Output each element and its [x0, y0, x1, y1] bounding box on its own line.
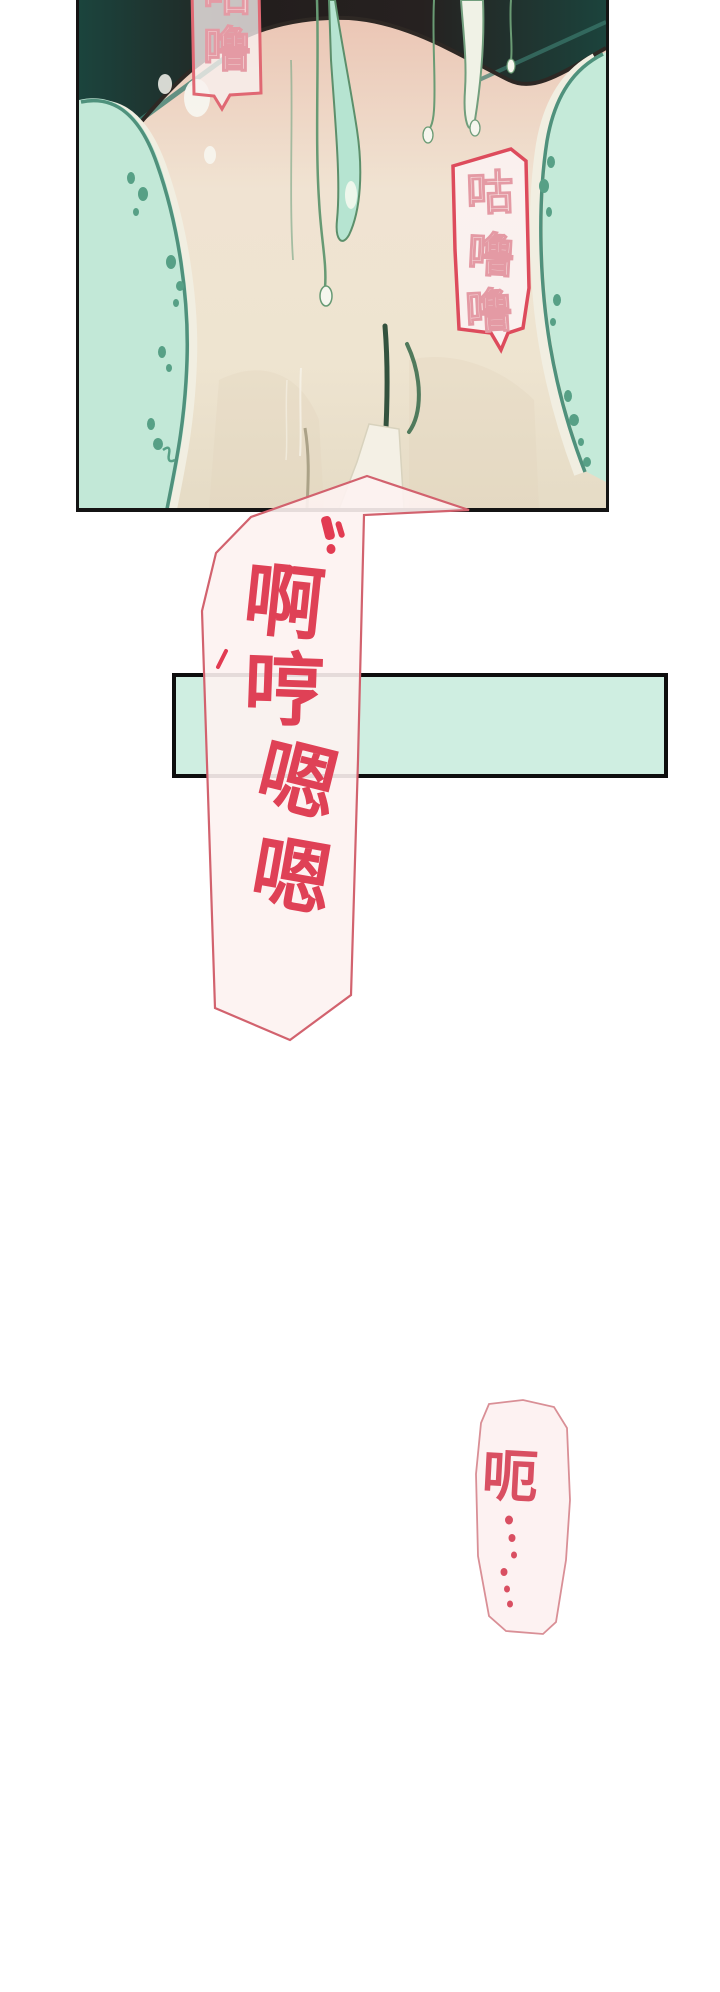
speech-bubble-bottom — [476, 1400, 570, 1634]
dialogue-char: 啊 — [240, 559, 328, 647]
comic-page: 咕 噜 咕 噜 噜 — [0, 0, 720, 1992]
dialogue-char: 嗯 — [246, 831, 339, 924]
dialogue-char: 哼 — [243, 650, 326, 733]
dialogue-char: 呃 — [481, 1449, 540, 1508]
overlay-layer: 啊 哼 嗯 嗯 呃 — [0, 0, 720, 1992]
